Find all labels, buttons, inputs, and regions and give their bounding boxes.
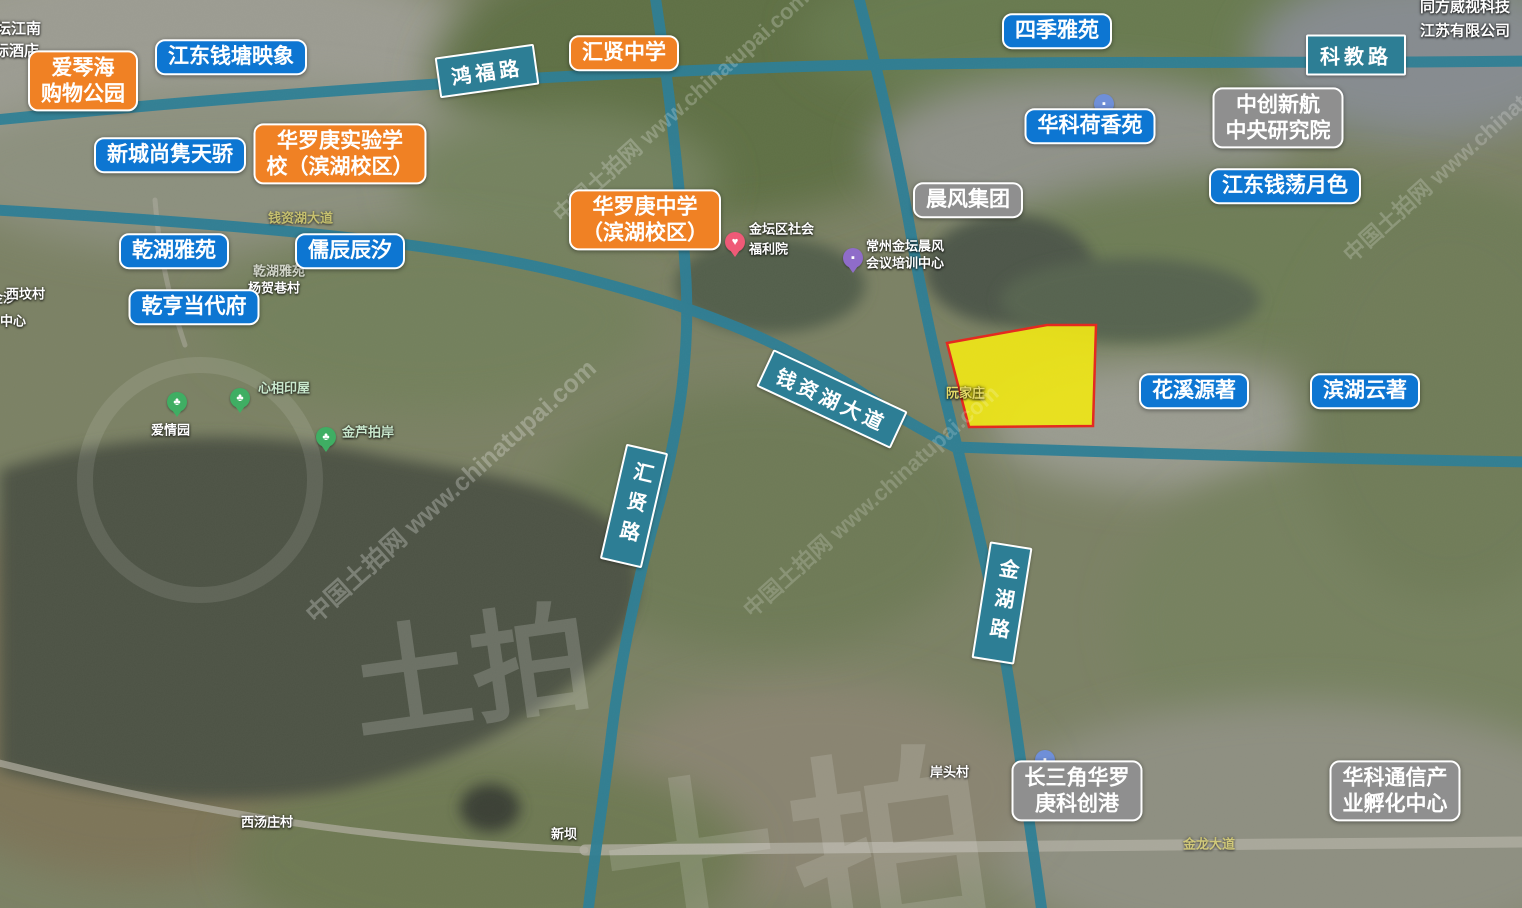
basemap-place-label: 会议培训中心 bbox=[866, 253, 944, 272]
poi-label-line: 爱琴海 bbox=[41, 55, 125, 81]
poi-label: 华罗庚中学（滨湖校区） bbox=[569, 189, 721, 250]
road-label: 科教路 bbox=[1306, 35, 1406, 76]
basemap-place-label: 岸头村 bbox=[930, 762, 969, 781]
basemap-place-label: 阮家庄 bbox=[946, 383, 985, 402]
basemap-place-label: 福利院 bbox=[749, 239, 788, 258]
park-pin-icon: ♣ bbox=[230, 388, 250, 408]
basemap-place-label: 西坟村 bbox=[6, 284, 45, 303]
basemap-place-label: 新坝 bbox=[551, 824, 577, 843]
poi-label-line: 乾湖雅苑 bbox=[132, 238, 216, 264]
basemap-place-label: 同方威视科技 bbox=[1420, 0, 1510, 17]
poi-label-line: 汇贤中学 bbox=[582, 40, 666, 66]
poi-label-line: 庚科创港 bbox=[1025, 791, 1130, 817]
basemap-place-label: 江苏有限公司 bbox=[1420, 20, 1510, 41]
poi-label-line: 华科荷香苑 bbox=[1038, 113, 1143, 139]
poi-label-line: 中创新航 bbox=[1226, 92, 1331, 118]
poi-label: 儒辰辰汐 bbox=[295, 233, 405, 269]
poi-label-line: （滨湖校区） bbox=[582, 220, 708, 246]
basemap-place-label: 心相印屋 bbox=[258, 378, 310, 397]
poi-label: 江东钱荡月色 bbox=[1209, 168, 1361, 204]
park-pin-icon: ♣ bbox=[316, 427, 336, 447]
poi-label: 花溪源著 bbox=[1139, 373, 1249, 409]
poi-label-line: 长三角华罗 bbox=[1025, 765, 1130, 791]
poi-label-line: 四季雅苑 bbox=[1015, 18, 1099, 44]
hotel-pin-icon: ▪ bbox=[843, 248, 863, 268]
basemap-place-label: 金芦拍岸 bbox=[342, 422, 394, 441]
park-pin-icon: ♣ bbox=[167, 392, 187, 412]
poi-label-line: 江东钱塘映象 bbox=[168, 44, 294, 70]
poi-label: 乾亨当代府 bbox=[129, 289, 260, 325]
poi-label: 长三角华罗庚科创港 bbox=[1012, 760, 1143, 821]
poi-label: 江东钱塘映象 bbox=[155, 39, 307, 75]
poi-label-line: 购物公园 bbox=[41, 81, 125, 107]
poi-label-line: 华罗庚实验学 bbox=[267, 128, 414, 154]
poi-label: 汇贤中学 bbox=[569, 35, 679, 71]
poi-label-line: 校（滨湖校区） bbox=[267, 154, 414, 180]
poi-label-line: 业孵化中心 bbox=[1343, 791, 1448, 817]
basemap-place-label: 西汤庄村 bbox=[241, 812, 293, 831]
poi-label: 华科通信产业孵化中心 bbox=[1330, 760, 1461, 821]
poi-label-line: 华罗庚中学 bbox=[582, 194, 708, 220]
poi-label: 新城尚隽天骄 bbox=[94, 137, 246, 173]
welfare-pin-icon: ♥ bbox=[725, 232, 745, 252]
basemap-place-label: 金龙大道 bbox=[1183, 834, 1235, 853]
poi-label-line: 新城尚隽天骄 bbox=[107, 142, 233, 168]
basemap-place-label: 爱情园 bbox=[151, 420, 190, 439]
poi-label-line: 江东钱荡月色 bbox=[1222, 173, 1348, 199]
poi-label: 爱琴海购物公园 bbox=[28, 50, 138, 111]
poi-label: 中创新航中央研究院 bbox=[1213, 87, 1344, 148]
poi-label: 华科荷香苑 bbox=[1025, 108, 1156, 144]
poi-label-line: 晨风集团 bbox=[926, 187, 1010, 213]
poi-label-line: 儒辰辰汐 bbox=[308, 238, 392, 264]
poi-label-line: 乾亨当代府 bbox=[142, 294, 247, 320]
basemap-place-label: 中心 bbox=[0, 311, 26, 330]
satellite-map[interactable]: 坛江南际酒店金沙中心西坟村钱资湖大道乾湖雅苑杨贺巷村爱情园心相印屋金芦拍岸金坛区… bbox=[0, 0, 1522, 908]
poi-label-line: 花溪源著 bbox=[1152, 378, 1236, 404]
poi-label: 四季雅苑 bbox=[1002, 13, 1112, 49]
basemap-place-label: 钱资湖大道 bbox=[268, 208, 333, 227]
poi-label-line: 中央研究院 bbox=[1226, 118, 1331, 144]
basemap-place-label: 坛江南 bbox=[0, 18, 41, 39]
poi-label-line: 华科通信产 bbox=[1343, 765, 1448, 791]
poi-label: 乾湖雅苑 bbox=[119, 233, 229, 269]
poi-label: 华罗庚实验学校（滨湖校区） bbox=[254, 123, 427, 184]
poi-label: 滨湖云著 bbox=[1310, 373, 1420, 409]
basemap-place-label: 金坛区社会 bbox=[749, 219, 814, 238]
poi-label-line: 滨湖云著 bbox=[1323, 378, 1407, 404]
poi-label: 晨风集团 bbox=[913, 182, 1023, 218]
